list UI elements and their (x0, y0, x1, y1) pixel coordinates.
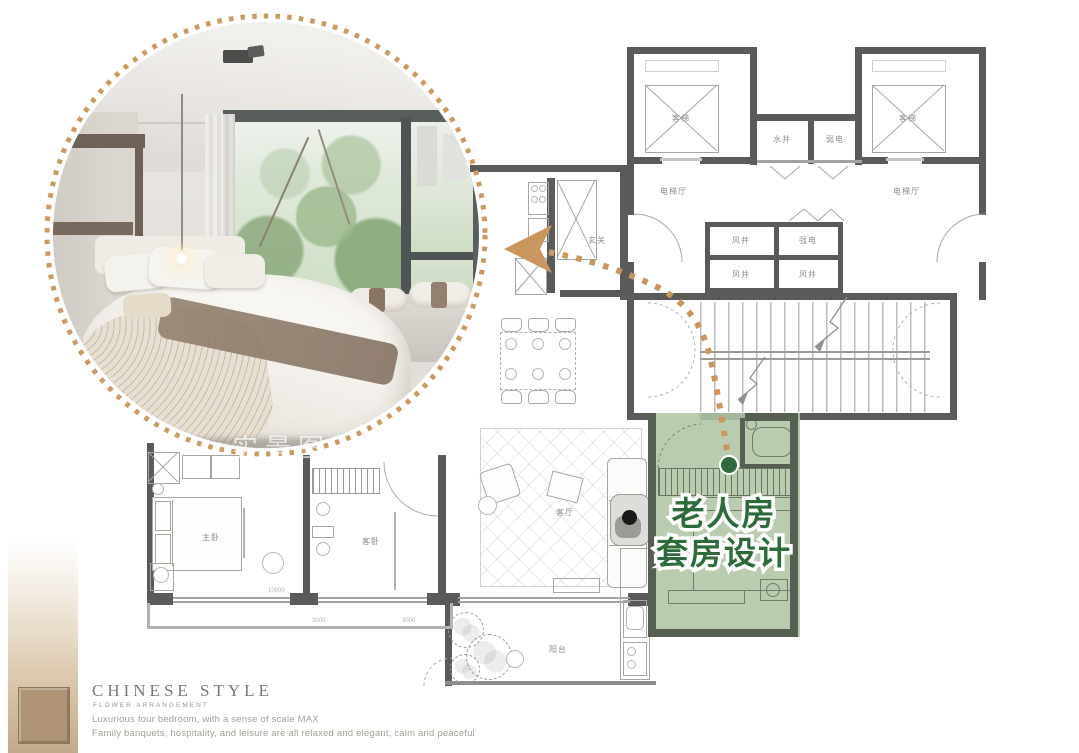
page: 客梯 客梯 水井 弱电 电梯厅 电梯厅 风井 强电 风井 风井 (0, 0, 1079, 753)
photo-watermark: 实景图 (232, 428, 331, 465)
brand-title: CHINESE STYLE (92, 681, 273, 701)
pendant-cord (181, 94, 183, 252)
bed-pillow (205, 254, 265, 288)
brand-subtitle: FLOWER ARRANGEMENT (93, 702, 209, 709)
building-silhouette (443, 134, 467, 180)
brand-tagline-2: Family banquets, hospitality, and leisur… (92, 728, 475, 739)
callout-dotted-leader (548, 252, 727, 450)
stair-door-arcs (648, 303, 940, 397)
bolster-band (431, 282, 447, 308)
door-chevrons (770, 166, 848, 221)
bedroom-photo (53, 22, 479, 448)
ceiling-light (247, 45, 264, 58)
lumbar-pillow (122, 292, 172, 319)
brand-logo (18, 687, 70, 744)
callout-arrowhead (504, 225, 552, 273)
wood-shelf (53, 134, 145, 148)
stair-arrowheads (738, 339, 825, 405)
suite-door-arc (658, 424, 701, 468)
window-mullion (401, 117, 411, 302)
brand-tagline-1: Luxurious four bedroom, with a sense of … (92, 714, 319, 725)
pendant-bulb (174, 250, 189, 267)
wood-shelf (53, 222, 133, 235)
building-silhouette (417, 126, 437, 186)
window-transom-bar (411, 252, 473, 260)
stair-arrows (738, 297, 847, 400)
